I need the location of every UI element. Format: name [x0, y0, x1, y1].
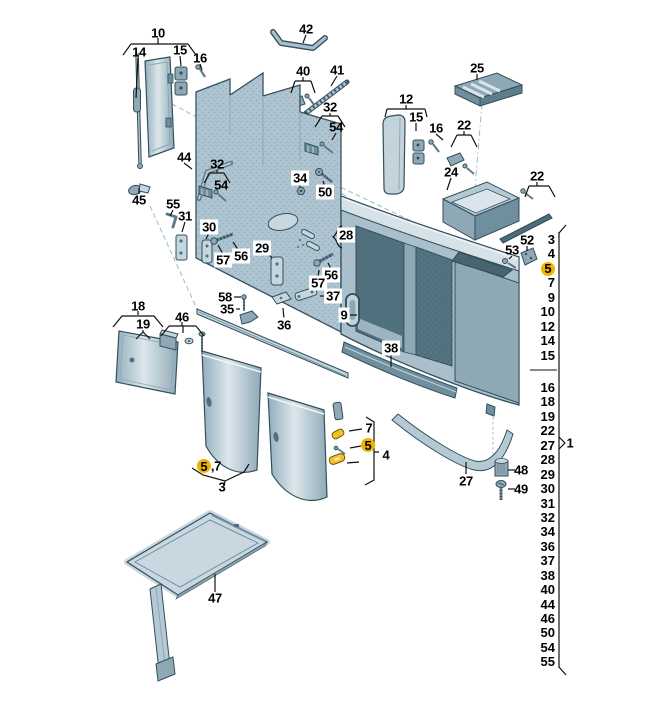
part-tray-24	[443, 182, 519, 240]
callout-47[interactable]: 47	[208, 592, 222, 605]
callout-32[interactable]: 32	[323, 101, 337, 114]
callout-24[interactable]: 24	[444, 166, 458, 179]
callout-22[interactable]: 22	[457, 119, 471, 132]
parts-list-item-14[interactable]: 14	[521, 334, 555, 348]
part-tray-insert-25	[455, 73, 522, 106]
part-spacer-48	[495, 459, 508, 477]
parts-list-item-40[interactable]: 40	[521, 583, 555, 597]
callout-46[interactable]: 46	[175, 311, 189, 324]
parts-list-item-30[interactable]: 30	[521, 482, 555, 496]
part-nut-34	[297, 188, 305, 195]
parts-list-item-37[interactable]: 37	[521, 554, 555, 568]
part-screw-16-right	[429, 140, 439, 152]
parts-list-item-36[interactable]: 36	[521, 540, 555, 554]
callout-35[interactable]: 35	[218, 302, 236, 317]
part-screw-58	[242, 295, 246, 311]
parts-list-item-5[interactable]: 5	[521, 262, 555, 276]
parts-list-item-32[interactable]: 32	[521, 511, 555, 525]
parts-list-item-34[interactable]: 34	[521, 525, 555, 539]
parts-list-item-19[interactable]: 19	[521, 410, 555, 424]
part-bracket-35	[240, 311, 258, 324]
part-hinges-15-left	[175, 67, 187, 95]
callout-30[interactable]: 30	[200, 220, 218, 235]
parts-list-item-50[interactable]: 50	[521, 626, 555, 640]
parts-list-item-9[interactable]: 9	[521, 291, 555, 305]
parts-list-item-3[interactable]: 3	[521, 233, 555, 247]
callout-16[interactable]: 16	[429, 122, 443, 135]
part-bracket-30	[202, 240, 212, 263]
parts-list-item-29[interactable]: 29	[521, 468, 555, 482]
parts-list-item-27[interactable]: 27	[521, 439, 555, 453]
parts-list-item-55[interactable]: 55	[521, 655, 555, 669]
part-table-47	[127, 513, 267, 681]
callout-53[interactable]: 53	[505, 244, 519, 257]
part-door-clips-5-7	[328, 402, 346, 465]
parts-list-item-31[interactable]: 31	[521, 497, 555, 511]
parts-list-item-22[interactable]: 22	[521, 424, 555, 438]
parts-list-item-10[interactable]: 10	[521, 305, 555, 319]
callout-22[interactable]: 22	[530, 170, 544, 183]
callout-7[interactable]: 7	[366, 422, 373, 435]
callout-15[interactable]: 15	[409, 111, 423, 124]
callout-42[interactable]: 42	[299, 23, 313, 36]
parts-list-item-46[interactable]: 46	[521, 612, 555, 626]
parts-list-item-7[interactable]: 7	[521, 276, 555, 290]
callout-54[interactable]: 54	[214, 179, 228, 192]
callout-25[interactable]: 25	[470, 62, 484, 75]
callout-14[interactable]: 14	[132, 46, 146, 59]
callout-4[interactable]: 4	[383, 449, 390, 462]
part-plate-29	[271, 257, 283, 285]
callout-38[interactable]: 38	[382, 341, 400, 356]
callout-9[interactable]: 9	[339, 308, 350, 323]
parts-list-item-15[interactable]: 15	[521, 349, 555, 363]
part-side-panel-10	[145, 57, 174, 157]
callout-15[interactable]: 15	[173, 44, 187, 57]
part-pin-55	[167, 214, 176, 227]
parts-list-item-54[interactable]: 54	[521, 641, 555, 655]
callout-1[interactable]: 1	[567, 437, 574, 450]
callout-3[interactable]: 3	[219, 481, 226, 494]
callout-19[interactable]: 19	[136, 318, 150, 331]
callout-27[interactable]: 27	[459, 475, 473, 488]
callout-36[interactable]: 36	[275, 318, 293, 333]
parts-list-upper: 3457910121415	[521, 233, 555, 363]
callout-28[interactable]: 28	[337, 228, 355, 243]
callout-12[interactable]: 12	[399, 93, 413, 106]
parts-list-item-4[interactable]: 4	[521, 247, 555, 261]
callout-34[interactable]: 34	[291, 171, 309, 186]
parts-list-item-12[interactable]: 12	[521, 320, 555, 334]
parts-list-item-16[interactable]: 16	[521, 381, 555, 395]
callout-57[interactable]: 57	[214, 253, 232, 268]
callout-44[interactable]: 44	[177, 151, 191, 164]
parts-list-item-18[interactable]: 18	[521, 395, 555, 409]
callout-29[interactable]: 29	[253, 241, 271, 256]
part-hinge-31	[176, 235, 187, 260]
callout-31[interactable]: 31	[178, 210, 192, 223]
callout-56[interactable]: 56	[232, 249, 250, 264]
callout-16[interactable]: 16	[193, 52, 207, 65]
exploded-parts-diagram: 1014151642404125121516222422443254325445…	[0, 0, 645, 707]
callout-45[interactable]: 45	[132, 194, 146, 207]
callout-41[interactable]: 41	[330, 64, 344, 77]
parts-list-item-38[interactable]: 38	[521, 569, 555, 583]
callout-54[interactable]: 54	[329, 121, 343, 134]
parts-list-item-44[interactable]: 44	[521, 598, 555, 612]
callout-5[interactable]: 5	[361, 438, 375, 452]
callout-32[interactable]: 32	[210, 158, 224, 171]
callout-57[interactable]: 5,7	[197, 459, 221, 473]
callout-50[interactable]: 50	[316, 185, 334, 200]
parts-list-item-28[interactable]: 28	[521, 453, 555, 467]
part-screw-49	[496, 481, 506, 501]
part-hinges-15-right	[413, 140, 424, 164]
part-panel-12	[383, 115, 405, 194]
callout-18[interactable]: 18	[131, 300, 145, 313]
part-door-left-3	[202, 351, 261, 472]
callout-37[interactable]: 37	[324, 289, 342, 304]
part-strip-14	[134, 53, 143, 169]
part-door-right-4	[268, 393, 327, 500]
callout-10[interactable]: 10	[151, 27, 165, 40]
parts-list-lower: 1618192227282930313234363738404446505455	[521, 381, 555, 670]
callout-40[interactable]: 40	[296, 65, 310, 78]
